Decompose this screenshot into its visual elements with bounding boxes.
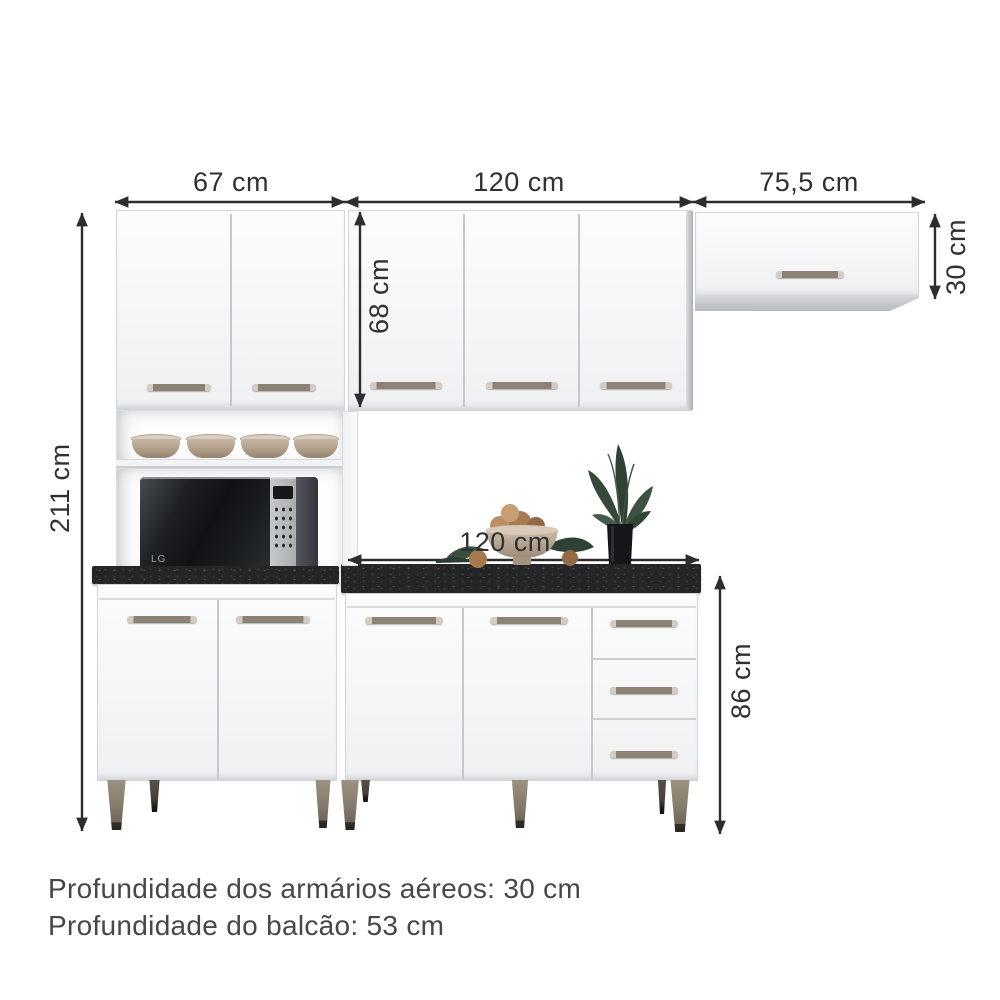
bowl: [186, 434, 236, 459]
drawer-handle-2: [610, 687, 678, 694]
cabinet-leg: [312, 780, 334, 828]
upper-right-door-handle: [776, 271, 844, 278]
bowl-body: [132, 439, 180, 458]
upper-middle-door-handle-2: [486, 382, 558, 389]
plant-decor: [578, 412, 662, 568]
upper-right-cabinet-underside: [695, 298, 919, 311]
middle-cabinet-support-panel: [342, 411, 358, 566]
dim-label-total-height: 211 cm: [45, 424, 75, 552]
upper-left-door-seam: [230, 214, 232, 406]
drawer-divider-1: [593, 658, 696, 660]
kitchen-cabinet-dimension-diagram: LG: [0, 0, 1000, 1000]
dim-label-top-left-width: 67 cm: [160, 167, 302, 198]
cabinet-leg: [337, 780, 363, 830]
dim-label-counter-width: 120 cm: [434, 527, 576, 558]
microwave-display: [273, 486, 293, 499]
dim-label-base-cabinet-height: 86 cm: [726, 634, 756, 728]
upper-left-door-handle-2: [252, 384, 316, 391]
upper-middle-door-seam-2: [578, 214, 580, 407]
drawer-handle-3: [610, 751, 678, 758]
left-countertop: [92, 566, 339, 584]
cabinet-leg: [508, 780, 532, 828]
drawer-handle-1: [610, 620, 678, 627]
left-base-door-seam: [217, 600, 219, 779]
right-base-drawer-seam: [591, 608, 593, 779]
cabinet-leg-back: [147, 780, 162, 812]
upper-middle-door-handle-3: [600, 382, 672, 389]
plant-illustration: [578, 412, 662, 568]
dim-label-top-center-width: 120 cm: [448, 167, 590, 198]
bowl-body: [241, 439, 289, 458]
bowl: [131, 434, 181, 459]
microwave: LG: [140, 477, 318, 573]
bowl: [293, 434, 339, 459]
upper-middle-door-seam-1: [463, 214, 465, 407]
right-base-rail-seam: [347, 606, 696, 608]
cabinet-leg: [103, 780, 130, 830]
microwave-side-panel: [296, 477, 318, 573]
left-base-door-handle-2: [236, 616, 310, 623]
right-base-door-handle-1: [365, 617, 443, 624]
cabinet-leg-back: [656, 780, 668, 814]
upper-middle-door-handle-1: [370, 382, 442, 389]
dim-label-wall-cabinet-height: 68 cm: [364, 250, 394, 342]
bowl-body: [294, 439, 338, 458]
upper-middle-side-panel: [686, 211, 693, 410]
cabinet-leg-back: [359, 780, 372, 802]
cabinet-leg: [666, 780, 694, 832]
note-wall-cabinet-depth: Profundidade dos armários aéreos: 30 cm: [48, 870, 581, 907]
right-base-door-seam: [462, 608, 464, 779]
depth-notes: Profundidade dos armários aéreos: 30 cm …: [48, 870, 581, 944]
dim-label-top-right-width: 75,5 cm: [738, 167, 880, 198]
upper-middle-cabinet: [348, 210, 692, 411]
left-base-door-handle-1: [127, 616, 197, 623]
dim-label-right-wall-cabinet-height: 30 cm: [941, 212, 971, 302]
note-counter-depth: Profundidade do balcão: 53 cm: [48, 907, 581, 944]
bowl: [240, 434, 290, 459]
upper-right-cabinet: [695, 212, 919, 298]
right-base-door-handle-2: [490, 617, 568, 624]
microwave-keypad: [273, 505, 293, 551]
bowl-body: [187, 439, 235, 458]
shelf-board: [116, 459, 345, 468]
microwave-brand-logo: LG: [151, 554, 166, 565]
upper-left-door-handle-1: [147, 384, 211, 391]
drawer-divider-2: [593, 718, 696, 720]
